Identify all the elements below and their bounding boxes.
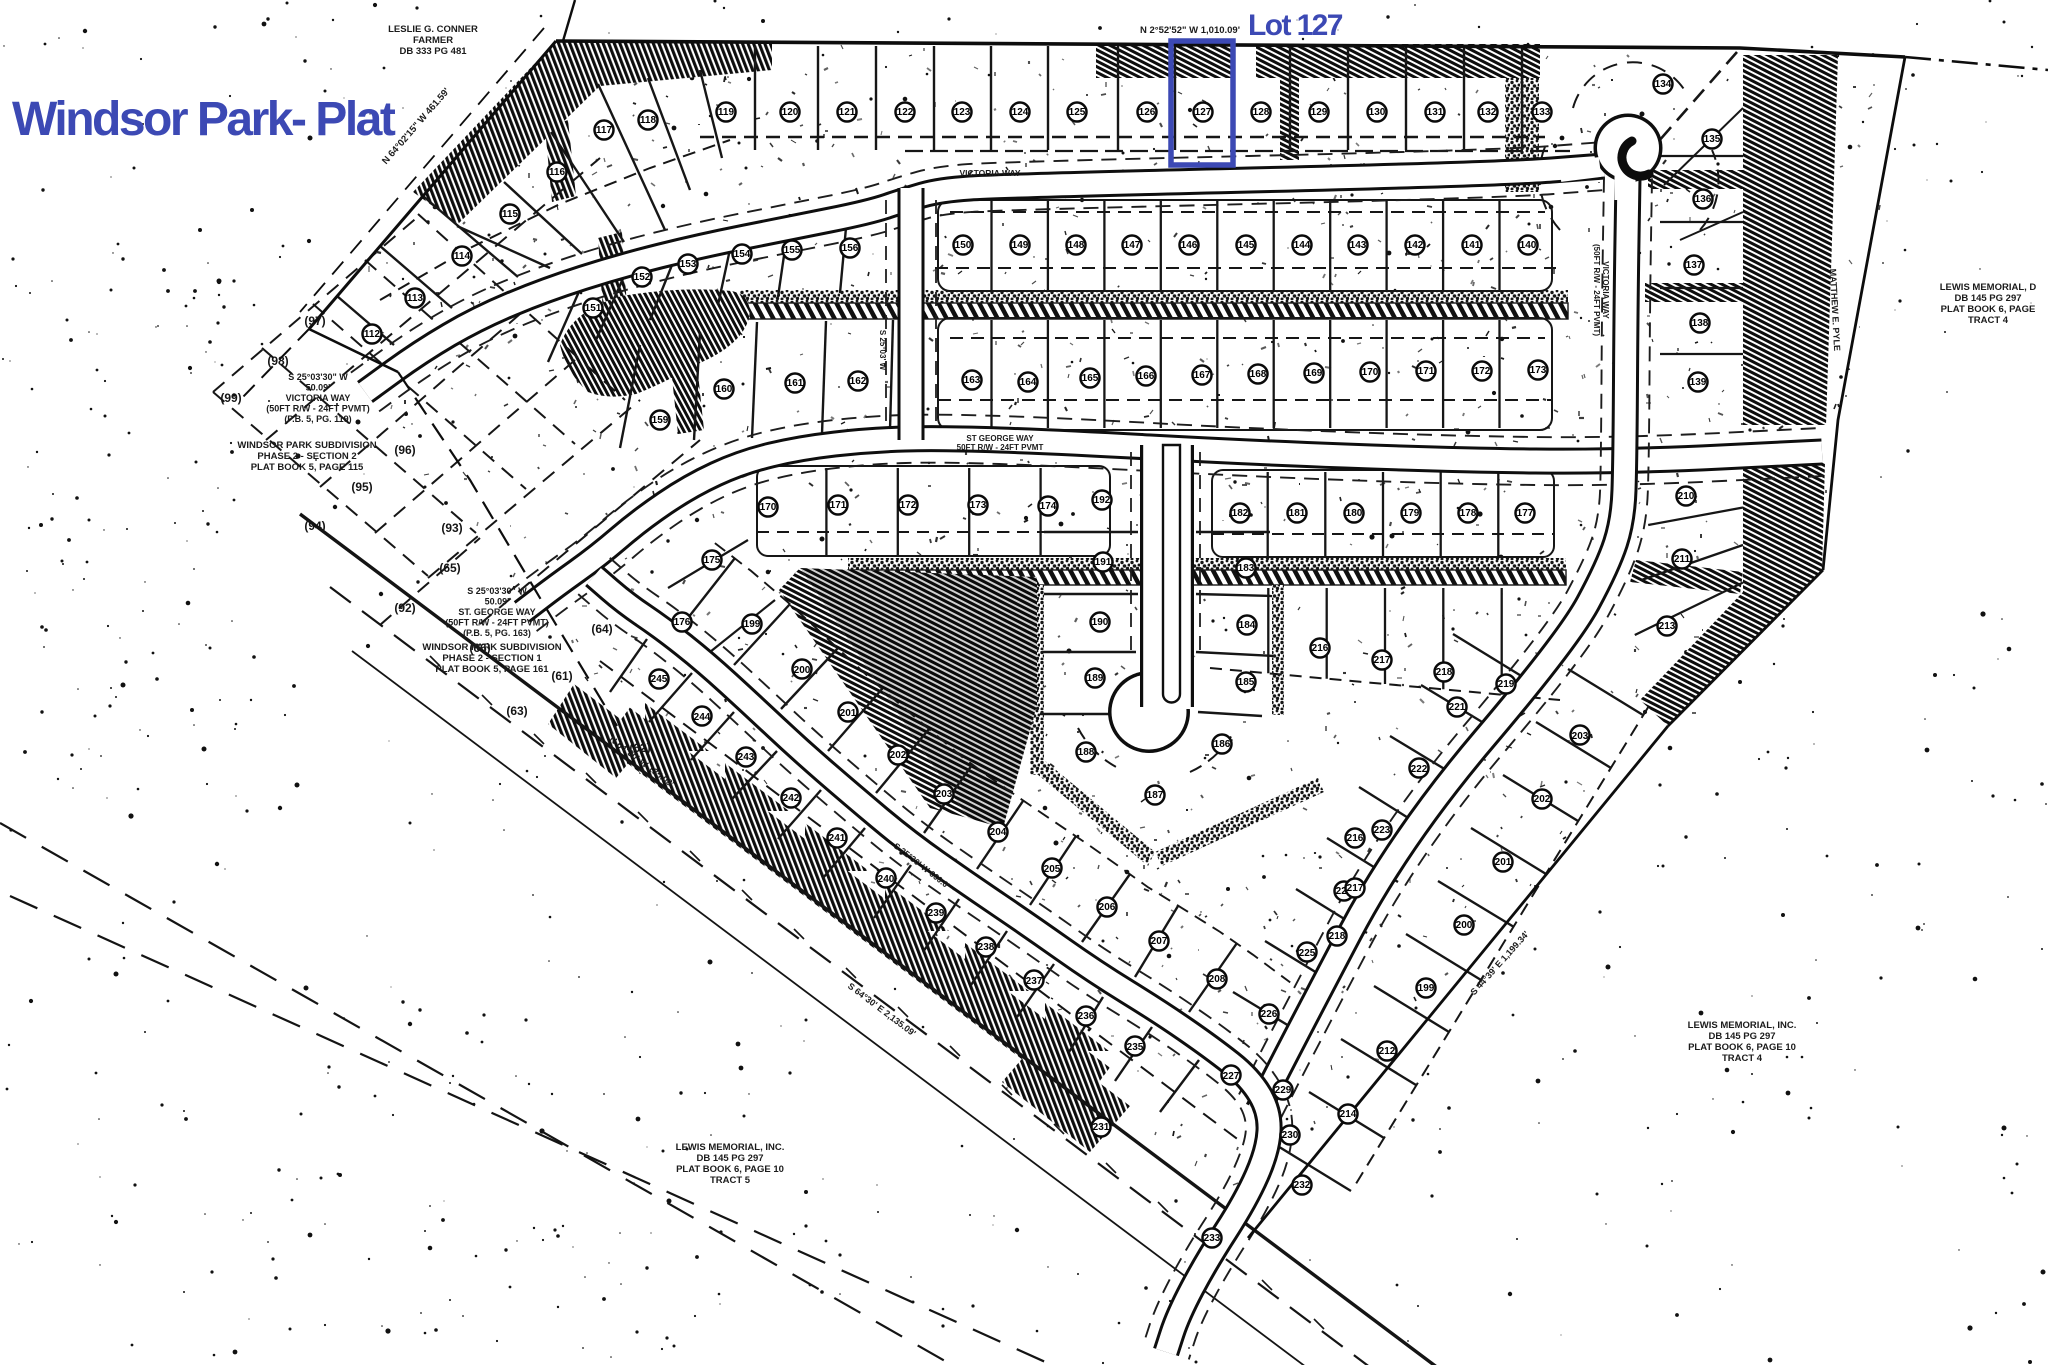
svg-text:VICTORIA WAY: VICTORIA WAY — [959, 168, 1020, 178]
svg-text:(98): (98) — [267, 354, 288, 368]
svg-text:170: 170 — [760, 502, 777, 513]
svg-text:131: 131 — [1427, 107, 1444, 118]
svg-text:241: 241 — [829, 833, 846, 844]
svg-text:164: 164 — [1020, 377, 1037, 388]
svg-text:172: 172 — [1474, 366, 1491, 377]
svg-text:S 25°03' W: S 25°03' W — [878, 330, 887, 371]
svg-text:189: 189 — [1087, 673, 1104, 684]
svg-text:226: 226 — [1261, 1009, 1278, 1020]
svg-text:153: 153 — [680, 259, 697, 270]
svg-text:236: 236 — [1078, 1011, 1095, 1022]
svg-text:154: 154 — [734, 249, 751, 260]
svg-text:216: 216 — [1347, 833, 1364, 844]
svg-text:178: 178 — [1460, 508, 1477, 519]
svg-text:175: 175 — [704, 555, 721, 566]
svg-text:115: 115 — [502, 209, 519, 220]
svg-text:200: 200 — [794, 665, 811, 676]
svg-text:161: 161 — [787, 378, 804, 389]
svg-text:156: 156 — [842, 243, 859, 254]
svg-text:116: 116 — [549, 167, 566, 178]
svg-text:163: 163 — [964, 375, 981, 386]
svg-text:186: 186 — [1214, 739, 1231, 750]
svg-text:214: 214 — [1340, 1109, 1357, 1120]
svg-text:129: 129 — [1311, 107, 1328, 118]
svg-text:176: 176 — [674, 617, 691, 628]
svg-text:204: 204 — [990, 827, 1007, 838]
svg-text:203: 203 — [936, 789, 953, 800]
svg-text:141: 141 — [1464, 240, 1481, 251]
svg-text:140: 140 — [1520, 240, 1537, 251]
svg-text:151: 151 — [585, 303, 602, 314]
svg-text:159: 159 — [652, 415, 669, 426]
svg-text:139: 139 — [1690, 377, 1707, 388]
svg-text:190: 190 — [1092, 617, 1109, 628]
svg-text:122: 122 — [897, 107, 914, 118]
svg-text:217: 217 — [1374, 655, 1391, 666]
svg-text:145: 145 — [1238, 240, 1255, 251]
svg-text:150: 150 — [955, 240, 972, 251]
svg-text:218: 218 — [1436, 667, 1453, 678]
svg-text:160: 160 — [716, 384, 733, 395]
svg-text:134: 134 — [1655, 79, 1672, 90]
svg-text:146: 146 — [1181, 240, 1198, 251]
svg-text:202: 202 — [890, 750, 907, 761]
svg-text:130: 130 — [1369, 107, 1386, 118]
svg-text:199: 199 — [1418, 983, 1435, 994]
svg-text:N 2°52'52" W 1,010.09': N 2°52'52" W 1,010.09' — [1140, 25, 1240, 36]
svg-text:149: 149 — [1012, 240, 1029, 251]
svg-text:200: 200 — [1456, 920, 1473, 931]
svg-text:171: 171 — [830, 500, 847, 511]
svg-text:183: 183 — [1238, 563, 1255, 574]
svg-text:Windsor Park- Plat: Windsor Park- Plat — [12, 93, 396, 146]
svg-text:ST GEORGE WAY50FT R/W - 24FT P: ST GEORGE WAY50FT R/W - 24FT PVMT — [957, 434, 1044, 452]
svg-text:148: 148 — [1068, 240, 1085, 251]
svg-text:127: 127 — [1195, 107, 1212, 118]
svg-text:(96): (96) — [394, 443, 415, 457]
svg-text:168: 168 — [1250, 369, 1267, 380]
svg-text:138: 138 — [1692, 318, 1709, 329]
svg-text:165: 165 — [1082, 373, 1099, 384]
svg-text:202: 202 — [1534, 794, 1551, 805]
svg-text:118: 118 — [640, 115, 657, 126]
svg-text:123: 123 — [954, 107, 971, 118]
svg-text:136: 136 — [1695, 194, 1712, 205]
svg-text:(64): (64) — [591, 622, 612, 636]
svg-text:120: 120 — [782, 107, 799, 118]
svg-text:144: 144 — [1294, 240, 1311, 251]
svg-text:166: 166 — [1138, 371, 1155, 382]
svg-text:117: 117 — [596, 125, 613, 136]
svg-text:210: 210 — [1678, 491, 1695, 502]
svg-text:233: 233 — [1204, 1233, 1221, 1244]
svg-text:206: 206 — [1099, 902, 1116, 913]
svg-text:179: 179 — [1403, 508, 1420, 519]
svg-text:244: 244 — [694, 712, 711, 723]
svg-text:112: 112 — [364, 329, 381, 340]
svg-text:237: 237 — [1026, 976, 1043, 987]
svg-text:(65): (65) — [439, 561, 460, 575]
svg-text:113: 113 — [407, 293, 424, 304]
svg-text:227: 227 — [1223, 1071, 1240, 1082]
svg-text:128: 128 — [1253, 107, 1270, 118]
svg-text:230: 230 — [1282, 1130, 1299, 1141]
svg-text:191: 191 — [1095, 557, 1112, 568]
svg-text:(99): (99) — [220, 391, 241, 405]
svg-text:192: 192 — [1094, 495, 1111, 506]
svg-text:231: 231 — [1093, 1122, 1110, 1133]
svg-text:(63): (63) — [506, 704, 527, 718]
svg-text:(94): (94) — [304, 519, 325, 533]
svg-text:177: 177 — [1517, 508, 1534, 519]
svg-text:173: 173 — [1530, 365, 1547, 376]
svg-text:199: 199 — [744, 619, 761, 630]
svg-text:221: 221 — [1449, 702, 1466, 713]
svg-text:114: 114 — [454, 251, 471, 262]
svg-text:162: 162 — [850, 376, 867, 387]
svg-text:188: 188 — [1078, 747, 1095, 758]
svg-text:172: 172 — [900, 500, 917, 511]
svg-text:170: 170 — [1362, 367, 1379, 378]
svg-text:218: 218 — [1329, 931, 1346, 942]
svg-text:223: 223 — [1374, 825, 1391, 836]
svg-text:137: 137 — [1686, 260, 1703, 271]
svg-text:Lot 127: Lot 127 — [1248, 9, 1343, 42]
svg-text:147: 147 — [1124, 240, 1141, 251]
svg-text:132: 132 — [1480, 107, 1497, 118]
svg-text:222: 222 — [1411, 764, 1428, 775]
svg-text:152: 152 — [634, 272, 651, 283]
svg-text:205: 205 — [1044, 864, 1061, 875]
svg-text:124: 124 — [1012, 107, 1029, 118]
svg-text:174: 174 — [1040, 501, 1057, 512]
svg-text:217: 217 — [1347, 883, 1364, 894]
svg-text:155: 155 — [784, 245, 801, 256]
svg-text:(97): (97) — [304, 314, 325, 328]
svg-text:169: 169 — [1306, 368, 1323, 379]
svg-text:126: 126 — [1139, 107, 1156, 118]
svg-text:WINDSOR PARK SUBDIVISIONPHASE: WINDSOR PARK SUBDIVISIONPHASE 2 - SECTIO… — [237, 440, 376, 473]
svg-text:187: 187 — [1147, 790, 1164, 801]
svg-text:184: 184 — [1239, 620, 1256, 631]
svg-text:232: 232 — [1294, 1180, 1311, 1191]
svg-text:242: 242 — [783, 793, 800, 804]
svg-text:201: 201 — [840, 708, 857, 719]
svg-text:212: 212 — [1379, 1046, 1396, 1057]
svg-text:239: 239 — [928, 908, 945, 919]
svg-text:121: 121 — [839, 107, 856, 118]
svg-text:211: 211 — [1674, 554, 1691, 565]
svg-text:225: 225 — [1299, 948, 1316, 959]
svg-text:(93): (93) — [441, 521, 462, 535]
svg-text:185: 185 — [1238, 677, 1255, 688]
svg-text:142: 142 — [1407, 240, 1424, 251]
svg-text:133: 133 — [1534, 107, 1551, 118]
svg-text:173: 173 — [970, 500, 987, 511]
svg-text:219: 219 — [1498, 679, 1515, 690]
svg-text:182: 182 — [1232, 508, 1249, 519]
svg-text:240: 240 — [878, 874, 895, 885]
svg-text:245: 245 — [651, 674, 668, 685]
svg-text:201: 201 — [1495, 857, 1512, 868]
svg-text:(61): (61) — [551, 669, 572, 683]
svg-text:203: 203 — [1572, 731, 1589, 742]
svg-text:216: 216 — [1312, 643, 1329, 654]
svg-text:207: 207 — [1151, 936, 1168, 947]
svg-text:229: 229 — [1275, 1085, 1292, 1096]
svg-text:180: 180 — [1346, 508, 1363, 519]
svg-text:208: 208 — [1209, 974, 1226, 985]
svg-text:243: 243 — [738, 752, 755, 763]
svg-text:(92): (92) — [394, 601, 415, 615]
svg-text:235: 235 — [1127, 1042, 1144, 1053]
svg-text:125: 125 — [1069, 107, 1086, 118]
svg-text:(95): (95) — [351, 480, 372, 494]
svg-text:WINDSOR PARK SUBDIVISIONPHASE: WINDSOR PARK SUBDIVISIONPHASE 2 - SECTIO… — [422, 642, 561, 675]
svg-text:119: 119 — [718, 107, 735, 118]
svg-text:238: 238 — [978, 942, 995, 953]
svg-text:143: 143 — [1350, 240, 1367, 251]
svg-text:167: 167 — [1194, 370, 1211, 381]
svg-text:213: 213 — [1659, 621, 1676, 632]
svg-text:181: 181 — [1289, 508, 1306, 519]
svg-text:171: 171 — [1418, 366, 1435, 377]
svg-text:135: 135 — [1704, 134, 1721, 145]
